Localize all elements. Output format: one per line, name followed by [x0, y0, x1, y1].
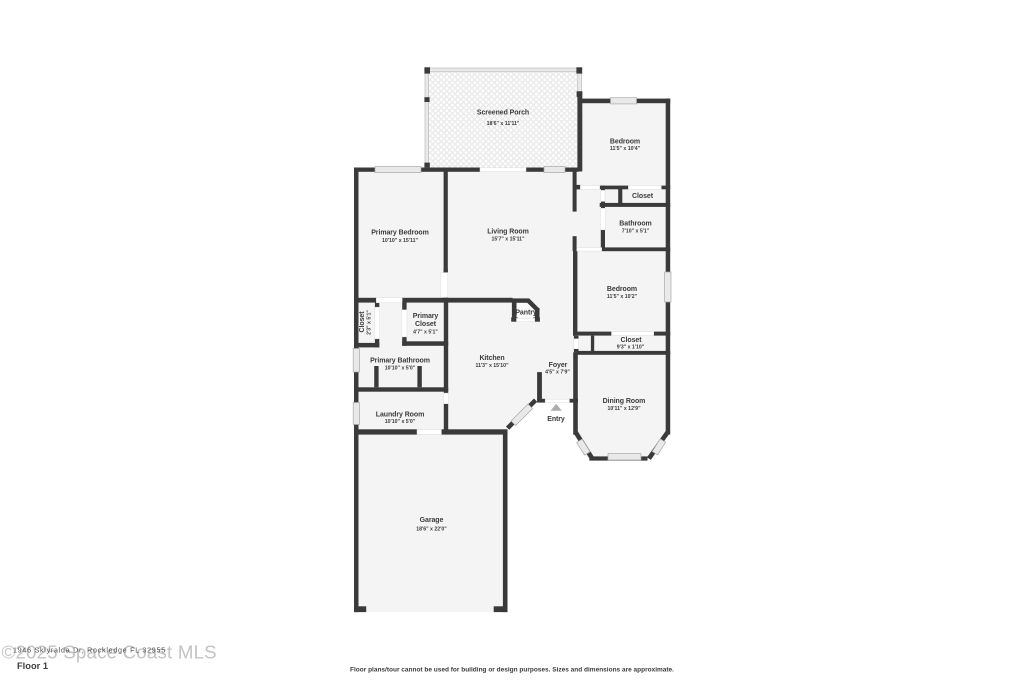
- svg-text:Bedroom: Bedroom: [607, 286, 637, 293]
- svg-text:Floor plans/tour cannot be use: Floor plans/tour cannot be used for buil…: [350, 667, 674, 674]
- svg-text:Kitchen: Kitchen: [479, 355, 504, 362]
- svg-text:Primary Bathroom: Primary Bathroom: [370, 358, 430, 365]
- svg-text:Screened Porch: Screened Porch: [477, 110, 529, 117]
- svg-text:7'10" x 5'1": 7'10" x 5'1": [622, 228, 650, 234]
- svg-text:Closet: Closet: [359, 311, 366, 333]
- svg-text:Dining Room: Dining Room: [603, 398, 646, 405]
- svg-text:10'10" x 5'0": 10'10" x 5'0": [385, 419, 416, 425]
- svg-text:Garage: Garage: [420, 517, 444, 524]
- svg-text:18'6" x 11'11": 18'6" x 11'11": [487, 121, 520, 127]
- svg-text:11'3" x 15'10": 11'3" x 15'10": [475, 363, 509, 369]
- svg-text:Closet: Closet: [632, 193, 654, 200]
- svg-text:Floor 1: Floor 1: [17, 661, 48, 671]
- svg-text:15'7" x 15'11": 15'7" x 15'11": [491, 237, 525, 243]
- svg-text:Living Room: Living Room: [487, 229, 529, 236]
- svg-text:Primary Bedroom: Primary Bedroom: [371, 230, 429, 237]
- svg-text:Closet: Closet: [415, 321, 437, 328]
- svg-text:11'5" x 10'4": 11'5" x 10'4": [610, 146, 641, 152]
- svg-text:4'5" x 7'9": 4'5" x 7'9": [545, 370, 570, 376]
- svg-text:Entry: Entry: [547, 416, 565, 423]
- svg-text:2'3" x 5'1": 2'3" x 5'1": [367, 310, 373, 335]
- svg-text:18'6" x 22'0": 18'6" x 22'0": [416, 527, 447, 533]
- svg-text:Primary: Primary: [413, 313, 439, 320]
- svg-text:Bathroom: Bathroom: [619, 221, 651, 228]
- svg-text:Closet: Closet: [621, 337, 643, 344]
- svg-text:Bedroom: Bedroom: [610, 139, 640, 146]
- svg-text:10'10" x 15'11": 10'10" x 15'11": [382, 238, 418, 244]
- svg-text:10'11" x 12'9": 10'11" x 12'9": [607, 406, 641, 412]
- svg-text:Foyer: Foyer: [549, 362, 568, 369]
- svg-text:Laundry Room: Laundry Room: [376, 412, 424, 419]
- svg-text:4'7" x 5'1": 4'7" x 5'1": [413, 330, 438, 336]
- svg-text:1946 Sklyralda Dr, Rockledge F: 1946 Sklyralda Dr, Rockledge FL 32955: [13, 647, 166, 655]
- svg-text:Pantry: Pantry: [515, 310, 536, 317]
- svg-text:9'3" x 1'10": 9'3" x 1'10": [617, 344, 645, 350]
- svg-text:10'10" x 5'0": 10'10" x 5'0": [385, 365, 416, 371]
- svg-text:11'5" x 10'2": 11'5" x 10'2": [607, 294, 638, 300]
